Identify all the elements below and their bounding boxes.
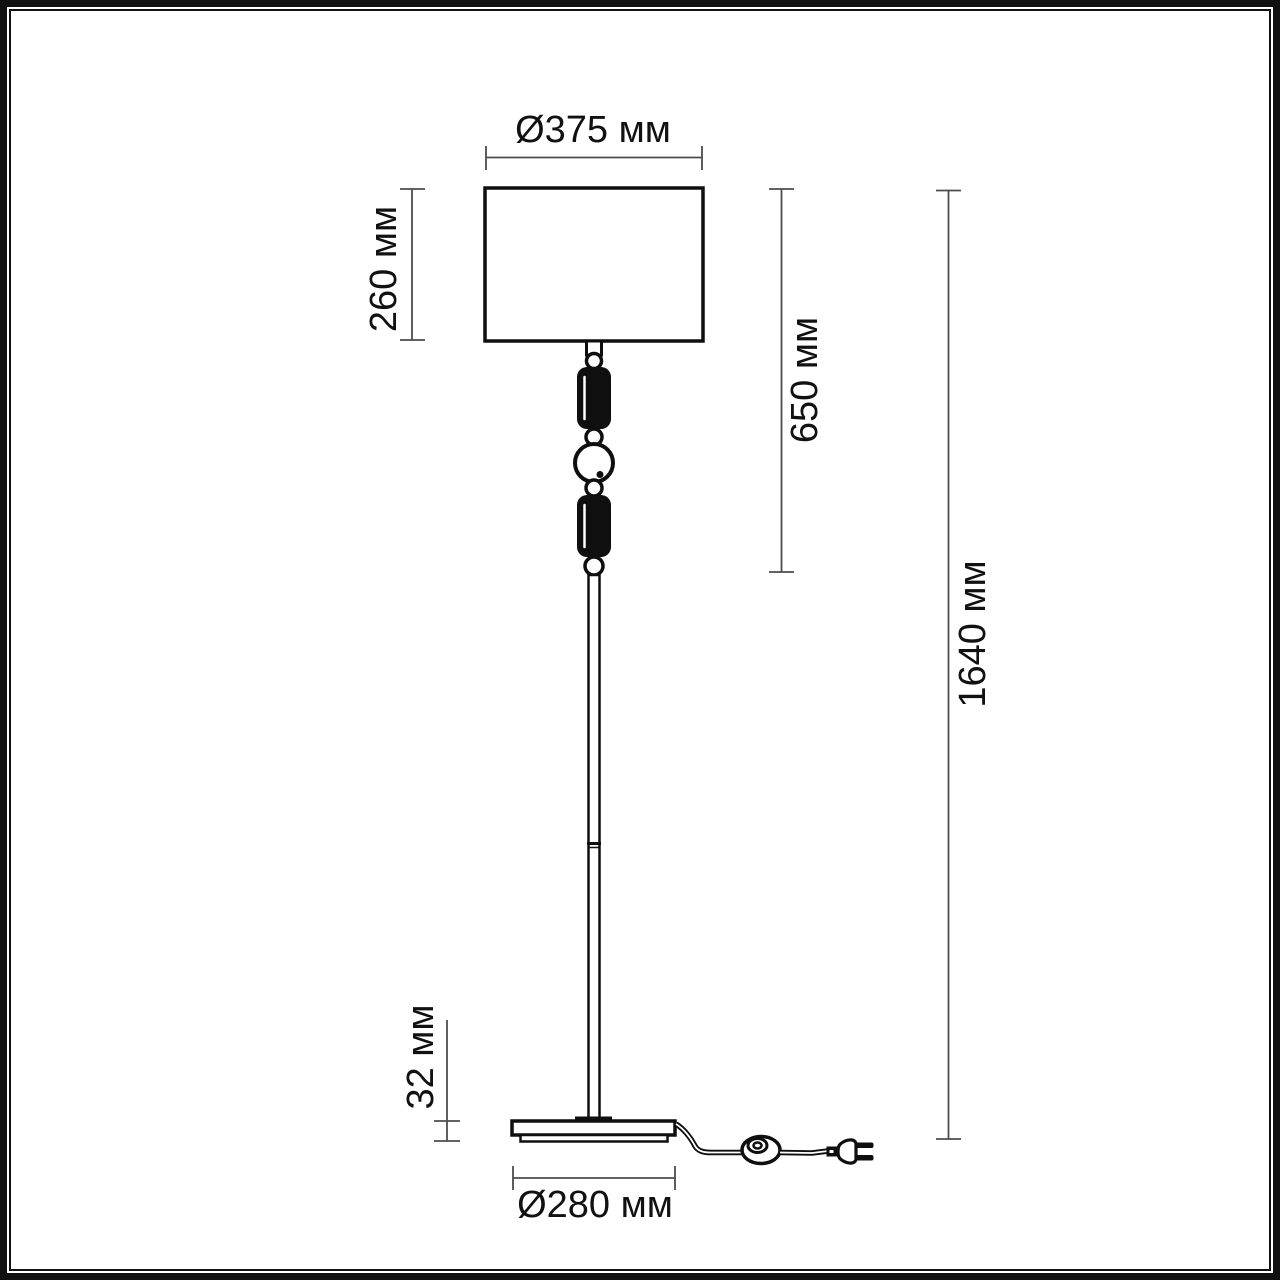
bead-below-sphere xyxy=(586,480,602,496)
decor-cylinder-upper xyxy=(577,367,611,429)
decor-cylinder-lower xyxy=(577,495,611,557)
base-top-plate xyxy=(512,1121,675,1135)
sphere-accent-dot xyxy=(597,471,604,478)
label-base-diameter: Ø280 мм xyxy=(445,1182,745,1228)
power-cord-left-inner xyxy=(676,1124,743,1153)
plug-prong-bottom xyxy=(856,1155,874,1161)
label-upper-section-height: 650 мм xyxy=(782,230,828,530)
plug-body xyxy=(838,1140,856,1163)
bead-bottom xyxy=(585,557,603,575)
plug-grip-slot xyxy=(830,1150,834,1153)
lamp-technical-drawing xyxy=(0,0,1280,1280)
label-shade-height: 260 мм xyxy=(361,119,407,419)
base-bottom-step xyxy=(521,1135,668,1142)
power-cord-left xyxy=(676,1124,743,1153)
label-total-height: 1640 мм xyxy=(950,484,996,784)
label-base-thickness: 32 мм xyxy=(398,907,444,1207)
bead-top xyxy=(587,354,602,369)
power-plug xyxy=(827,1140,874,1163)
foot-switch xyxy=(742,1137,780,1164)
decor-sphere xyxy=(575,444,613,482)
stand-pole xyxy=(589,575,600,1118)
plug-prong-top xyxy=(856,1143,874,1149)
diagram-canvas: Ø375 мм 260 мм 650 мм 1640 мм 32 мм Ø280… xyxy=(0,0,1280,1280)
label-shade-diameter: Ø375 мм xyxy=(443,107,743,153)
lampshade xyxy=(485,188,703,341)
